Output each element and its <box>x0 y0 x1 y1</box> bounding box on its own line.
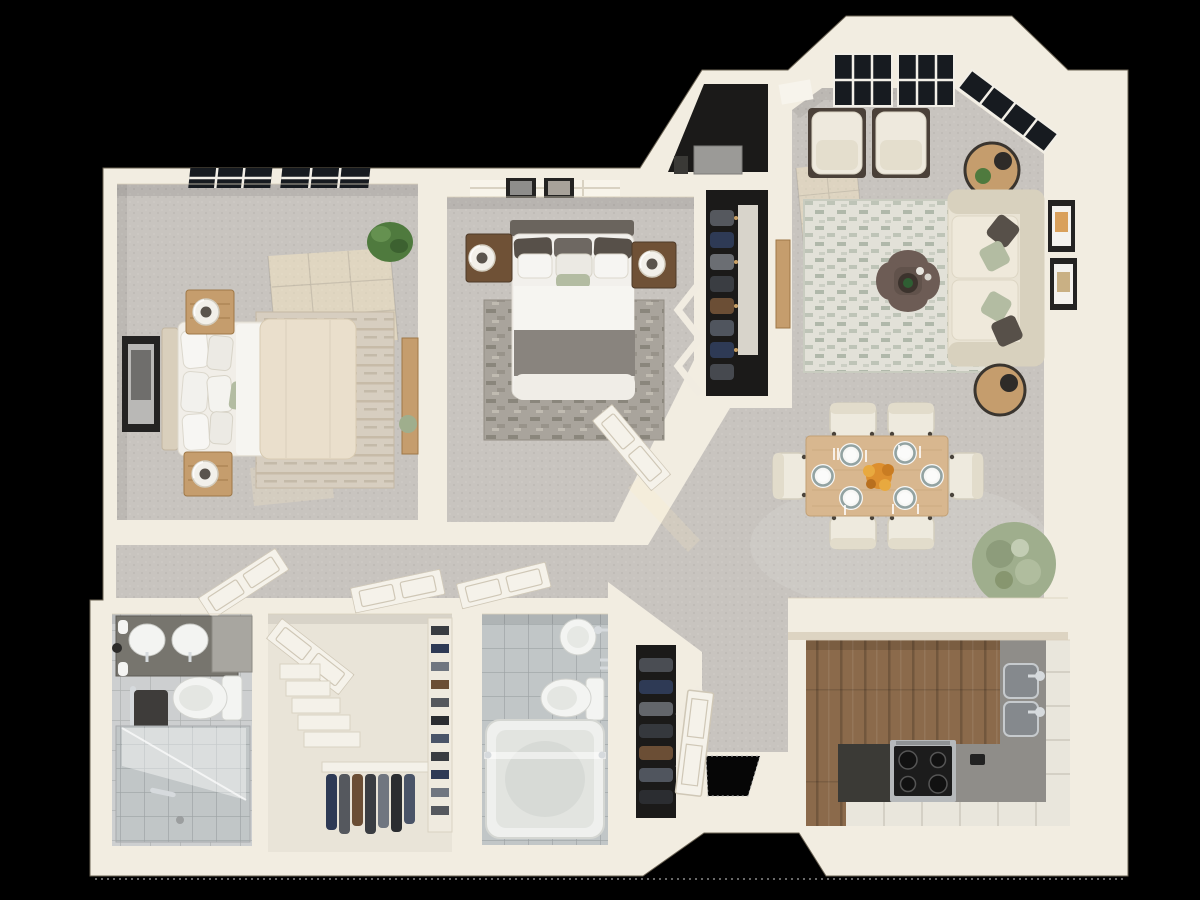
hvac-unit <box>694 146 742 174</box>
dark-counter-section <box>838 744 892 802</box>
shelf-board <box>738 205 758 355</box>
dining-chair <box>888 515 934 549</box>
dining-chair <box>949 453 983 499</box>
ring-lamp <box>192 461 218 487</box>
small-plant <box>975 168 991 184</box>
master-bed <box>162 319 356 459</box>
place-setting <box>839 486 863 510</box>
towel-roll <box>118 662 128 676</box>
right-cabinets <box>1046 640 1070 808</box>
table-lamp <box>994 152 1012 170</box>
range-stove <box>890 740 956 802</box>
hanging-clothes <box>326 774 415 834</box>
toilet <box>173 676 242 720</box>
potted-plant <box>367 222 413 262</box>
place-setting <box>893 441 917 465</box>
sage-accent-pillow <box>556 274 590 288</box>
floor-plan-render <box>0 0 1200 900</box>
west-console <box>776 240 790 328</box>
bedroom-2-bed <box>510 220 635 400</box>
table-lamp <box>1000 374 1018 392</box>
place-setting <box>920 464 944 488</box>
dining-chair <box>830 403 876 437</box>
accent-chair-east <box>872 108 930 178</box>
tub-glass-screen <box>484 752 606 759</box>
cream-sofa <box>948 190 1044 366</box>
soap-dispenser <box>112 643 122 653</box>
towel-roll <box>118 620 128 634</box>
place-setting <box>839 443 863 467</box>
drain <box>176 816 184 824</box>
half-wall-edge <box>788 632 1068 640</box>
dining-chair <box>888 403 934 437</box>
ring-lamp <box>469 245 495 271</box>
duvet-foot <box>514 374 635 400</box>
side-table-south <box>975 365 1025 415</box>
shoe-rack <box>428 618 452 832</box>
dining-chair <box>773 453 807 499</box>
side-dresser <box>402 338 418 454</box>
utility-item <box>674 156 688 174</box>
place-setting <box>811 464 835 488</box>
framed-wall-art <box>122 336 160 432</box>
tray-plant <box>903 278 913 288</box>
place-setting <box>893 486 917 510</box>
flower-centerpiece <box>863 463 894 491</box>
grey-blanket-band <box>514 330 635 376</box>
double-vanity <box>112 616 252 676</box>
sofa-back <box>1020 198 1044 358</box>
stove-controls <box>896 741 950 745</box>
bed-headboard <box>162 328 178 450</box>
floor-plan-screenshot <box>0 0 1200 900</box>
master-bathroom <box>112 616 252 842</box>
cream-duvet <box>260 319 356 459</box>
accent-chair-west <box>808 108 866 178</box>
ring-lamp <box>193 299 219 325</box>
sheet-band <box>514 286 634 332</box>
bathtub <box>484 720 606 838</box>
vanity-cabinet <box>212 616 252 672</box>
walk-in-shower <box>116 726 250 842</box>
large-potted-plant <box>972 522 1056 606</box>
side-table-north <box>965 143 1019 197</box>
ring-lamp <box>639 251 665 277</box>
small-plant <box>399 415 417 433</box>
counter-item <box>970 754 985 765</box>
dining-chair <box>830 515 876 549</box>
